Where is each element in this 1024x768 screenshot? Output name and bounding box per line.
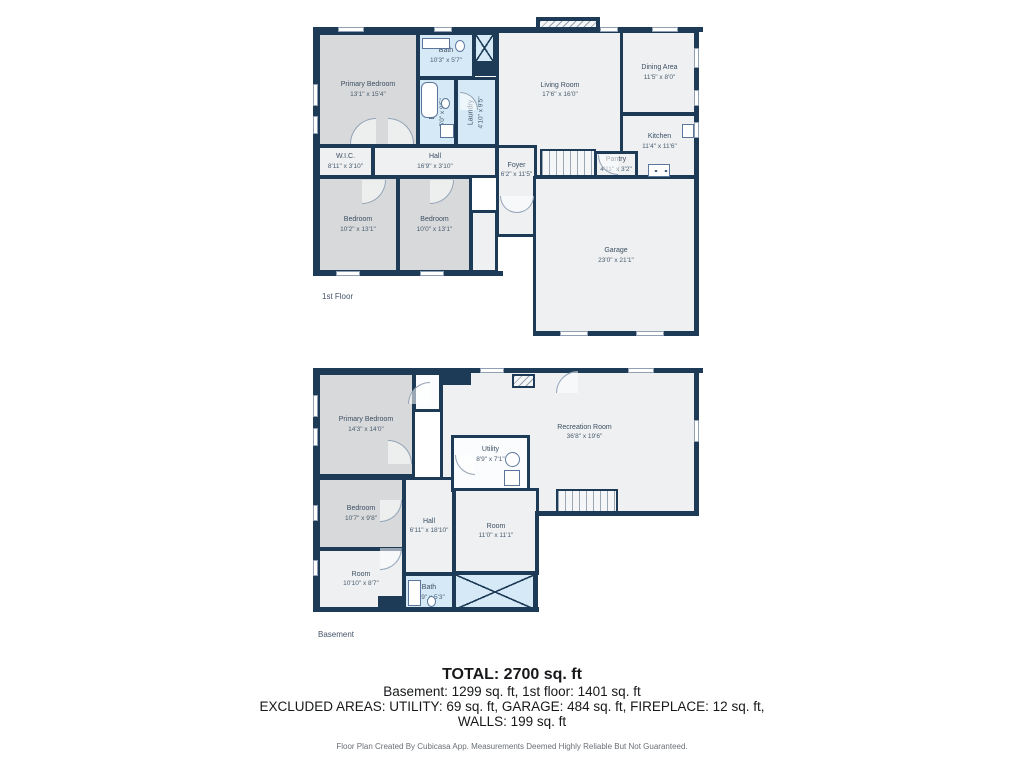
room-dims: 11'4" x 11'6" <box>642 142 677 151</box>
window <box>313 505 318 521</box>
room-dims: 6'2" x 11'5" <box>501 170 533 179</box>
kitchen-sink <box>682 124 694 138</box>
room-name: W.I.C. <box>328 152 363 162</box>
room-name: Bedroom <box>417 215 453 225</box>
outer-wall <box>313 27 318 276</box>
room-name: Living Room <box>541 81 580 91</box>
room-dims: 11'5" x 8'0" <box>641 73 677 82</box>
room-name: Primary Bedroom <box>341 80 395 90</box>
stove-icon <box>648 164 670 177</box>
window <box>694 122 699 138</box>
room-name: Primary Bedroom <box>339 415 393 425</box>
window <box>434 27 452 32</box>
floor-areas: Basement: 1299 sq. ft, 1st floor: 1401 s… <box>0 684 1024 699</box>
fireplace-basement <box>512 374 535 388</box>
bathtub <box>421 82 438 118</box>
outer-wall <box>313 607 539 612</box>
disclaimer: Floor Plan Created By Cubicasa App. Meas… <box>0 742 1024 751</box>
window <box>420 271 444 276</box>
toilet <box>441 98 450 109</box>
window <box>313 116 318 134</box>
room-dims: 14'3" x 14'0" <box>339 425 393 434</box>
window <box>336 271 360 276</box>
walls-area: WALLS: 199 sq. ft <box>0 714 1024 729</box>
outer-wall <box>313 27 703 32</box>
room-dining: Dining Area11'5" x 8'0" <box>620 30 699 115</box>
room-name: Utility <box>476 445 504 455</box>
room-dims: 11'0" x 11'1" <box>479 531 514 540</box>
first-floor-label: 1st Floor <box>322 292 353 301</box>
room-basement-middle: Room11'0" x 11'1" <box>453 488 539 574</box>
room-foyer: Foyer6'2" x 11'5" <box>496 145 537 237</box>
room-dims: 8'9" x 7'1" <box>476 455 504 464</box>
area-summary: TOTAL: 2700 sq. ft Basement: 1299 sq. ft… <box>0 666 1024 729</box>
room-hall-first: Hall16'9" x 3'10" <box>372 145 498 178</box>
basement-label: Basement <box>318 630 354 639</box>
room-dims: 13'1" x 15'4" <box>341 90 395 99</box>
room-name: Bedroom <box>340 215 376 225</box>
window <box>313 84 318 106</box>
room-dims: 8'11" x 3'10" <box>328 162 363 171</box>
outer-wall <box>694 368 699 516</box>
room-name: Kitchen <box>642 132 677 142</box>
room-dims: 17'6" x 16'0" <box>541 90 580 99</box>
room-laundry: Laundry4'10" x 9'5" <box>455 77 498 147</box>
water-heater <box>505 452 520 467</box>
window <box>600 27 618 32</box>
room-dims: 10'0" x 13'1" <box>417 225 453 234</box>
toilet <box>427 596 436 607</box>
total-area: TOTAL: 2700 sq. ft <box>0 666 1024 684</box>
room-dims: 10'10" x 8'7" <box>343 579 379 588</box>
floor-plan-page: Primary Bedroom13'1" x 15'4" Bath10'3" x… <box>0 0 1024 768</box>
outer-wall <box>535 511 539 575</box>
window <box>694 420 699 442</box>
window <box>480 368 504 373</box>
room-name: Garage <box>598 246 634 256</box>
room-name: Bedroom <box>345 504 377 514</box>
room-dims: 10'2" x 13'1" <box>340 225 376 234</box>
room-dims: 10'3" x 5'7" <box>430 56 462 65</box>
vanity <box>408 580 421 606</box>
room-dims: 6'11" x 18'10" <box>410 526 449 535</box>
wall-block <box>473 62 496 76</box>
washer <box>440 124 454 138</box>
window <box>652 27 678 32</box>
window <box>560 331 588 336</box>
room-name: Room <box>343 570 379 580</box>
vanity <box>422 38 450 49</box>
excluded-areas: EXCLUDED AREAS: UTILITY: 69 sq. ft, GARA… <box>0 699 1024 714</box>
room-name: Room <box>479 522 514 532</box>
room-dims: 36'8" x 19'6" <box>557 432 611 441</box>
room-wic: W.I.C.8'11" x 3'10" <box>317 145 374 178</box>
window <box>628 368 654 373</box>
closet-column <box>470 210 498 273</box>
window <box>636 331 664 336</box>
outer-wall <box>694 176 699 336</box>
furnace <box>504 470 520 486</box>
room-name: Foyer <box>501 161 533 171</box>
stairs-first-floor <box>540 149 596 177</box>
shower-basement <box>453 572 537 612</box>
window <box>694 90 699 106</box>
outer-wall <box>535 511 699 516</box>
shower-top <box>473 32 496 64</box>
room-hall-basement: Hall6'11" x 18'10" <box>403 477 455 575</box>
room-dims: 4'10" x 9'5" <box>477 96 486 128</box>
toilet <box>455 40 465 52</box>
room-garage: Garage23'0" x 21'1" <box>533 176 699 335</box>
window <box>694 48 699 68</box>
room-name: Hall <box>410 517 449 527</box>
window <box>313 395 318 417</box>
window <box>313 428 318 446</box>
room-dims: 10'7" x 9'8" <box>345 514 377 523</box>
room-bedroom-1: Bedroom10'2" x 13'1" <box>317 176 399 273</box>
room-name: Hall <box>417 152 453 162</box>
room-dims: 16'9" x 3'10" <box>417 162 453 171</box>
window <box>313 560 318 576</box>
room-name: Dining Area <box>641 63 677 73</box>
room-name: Recreation Room <box>557 423 611 433</box>
room-dims: 23'0" x 21'1" <box>598 256 634 265</box>
outer-wall <box>533 331 699 336</box>
window <box>338 27 364 32</box>
outer-wall <box>533 572 538 612</box>
